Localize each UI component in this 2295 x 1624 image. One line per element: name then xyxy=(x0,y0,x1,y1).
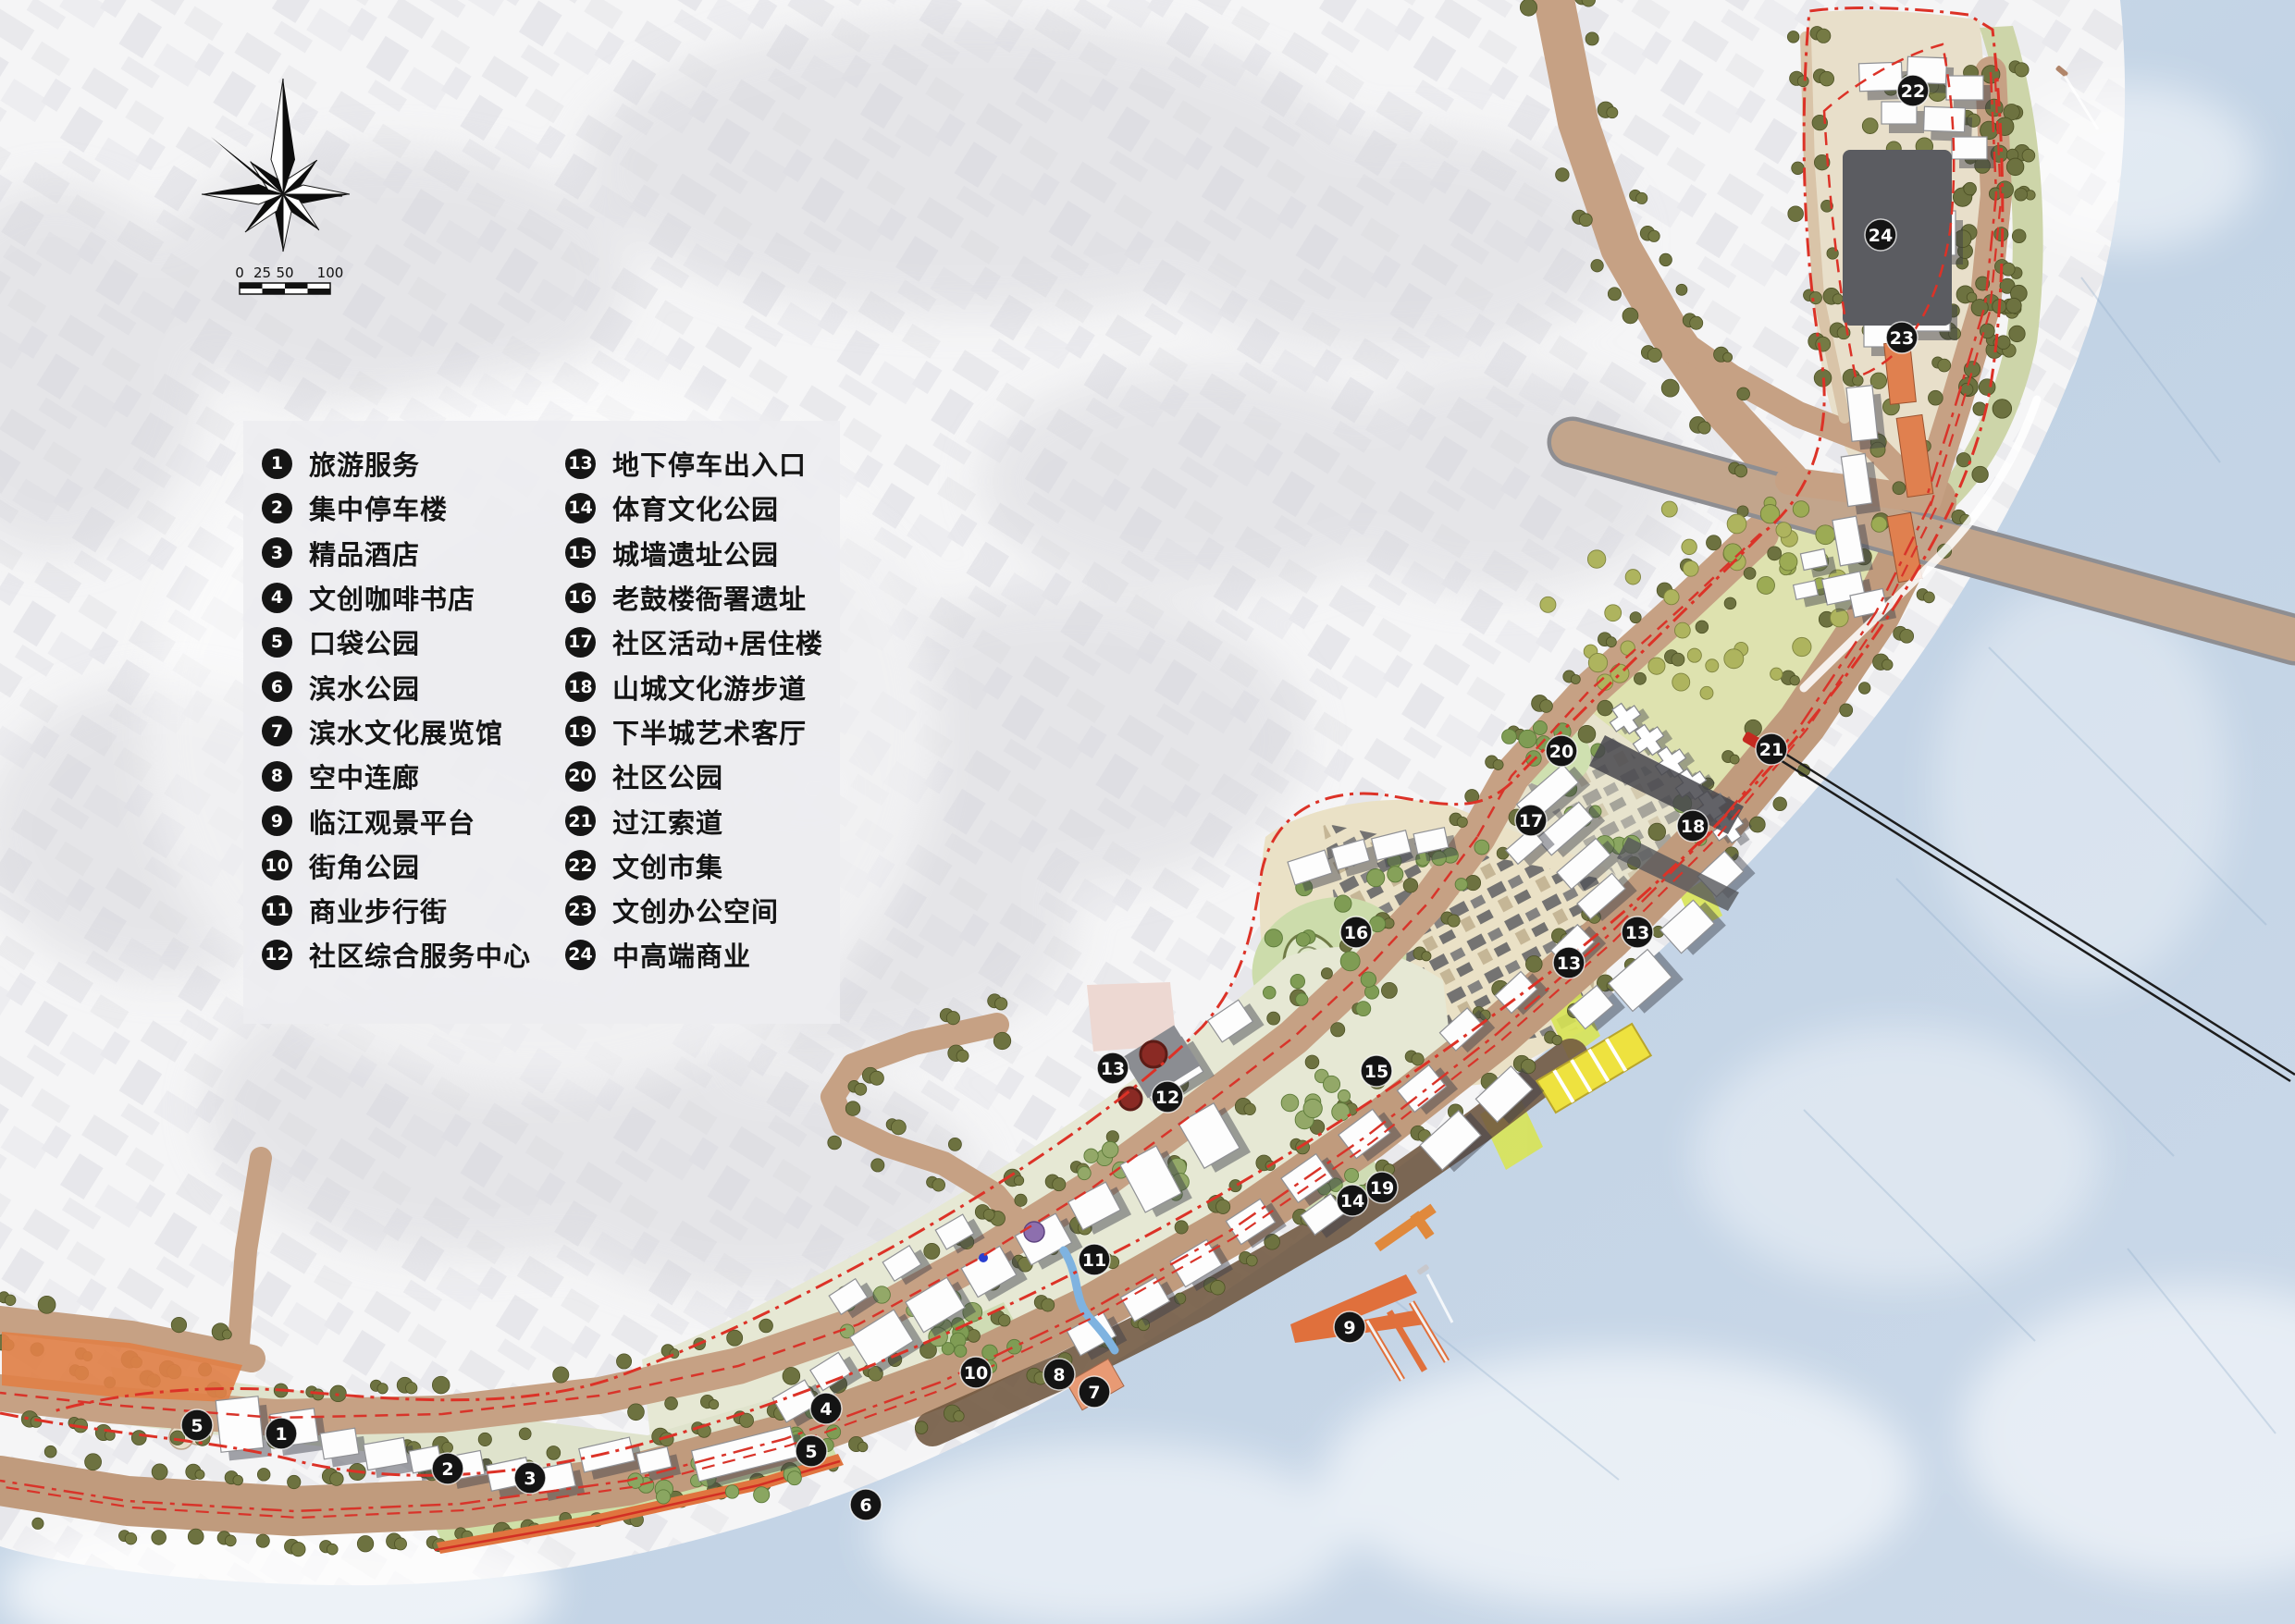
legend-item-label: 老鼓楼衙署遗址 xyxy=(612,578,807,617)
street-tree xyxy=(519,1428,531,1440)
map-marker: 4 xyxy=(810,1393,842,1424)
legend-item-label: 体育文化公园 xyxy=(612,488,779,527)
legend-item: 9临江观景平台 xyxy=(262,798,565,843)
legend-item-label: 文创咖啡书店 xyxy=(309,578,475,617)
street-tree xyxy=(1014,1175,1023,1185)
street-tree xyxy=(85,1454,102,1470)
park-tree xyxy=(1281,1094,1299,1112)
legend-item-label: 精品酒店 xyxy=(309,534,420,572)
street-tree xyxy=(1465,875,1480,890)
park-tree xyxy=(1540,597,1556,612)
map-marker: 1 xyxy=(265,1418,297,1449)
park-tree xyxy=(1780,553,1797,571)
park-tree xyxy=(1007,1339,1022,1354)
street-tree xyxy=(828,1136,842,1150)
scale-cell xyxy=(240,289,263,294)
street-tree xyxy=(1525,956,1542,973)
park-tree xyxy=(1960,383,1973,396)
street-tree xyxy=(1244,1103,1256,1115)
park-tree xyxy=(1388,867,1403,882)
park-tree xyxy=(1758,576,1775,594)
street-tree xyxy=(1737,388,1750,400)
street-tree xyxy=(1893,482,1906,495)
street-tree xyxy=(1853,375,1864,387)
street-tree xyxy=(1858,683,1870,695)
street-tree xyxy=(1648,823,1666,841)
park-tree xyxy=(1533,720,1547,734)
map-marker-number: 13 xyxy=(1101,1059,1125,1079)
scale-cell xyxy=(285,289,308,294)
map-marker: 13 xyxy=(1097,1052,1129,1084)
street-tree xyxy=(1768,547,1782,560)
legend-item-label: 地下停车出入口 xyxy=(612,444,807,483)
street-tree xyxy=(1305,1055,1319,1069)
park-tree xyxy=(2006,158,2024,176)
legend-item: 12社区综合服务中心 xyxy=(262,932,565,977)
legend-item-number: 5 xyxy=(262,627,292,658)
legend-item-number: 3 xyxy=(262,537,292,568)
map-marker-number: 23 xyxy=(1890,328,1914,349)
street-tree xyxy=(1571,674,1580,683)
building xyxy=(1946,76,1983,100)
street-tree xyxy=(1661,379,1679,397)
park-tree xyxy=(1290,974,1304,988)
street-tree xyxy=(871,1159,884,1172)
map-marker: 7 xyxy=(1079,1376,1110,1408)
street-tree xyxy=(1229,1180,1241,1192)
street-tree xyxy=(1788,206,1804,222)
legend-item: 17社区活动+居住楼 xyxy=(565,620,823,664)
street-tree xyxy=(616,1354,631,1369)
legend-item-number: 15 xyxy=(565,537,596,568)
street-tree xyxy=(38,1296,56,1313)
map-marker: 19 xyxy=(1366,1172,1398,1203)
street-tree xyxy=(932,1178,945,1191)
street-tree xyxy=(188,1529,204,1544)
street-tree xyxy=(1556,168,1570,182)
street-tree xyxy=(195,1470,204,1479)
street-tree xyxy=(1734,465,1746,477)
legend-item-label: 社区活动+居住楼 xyxy=(612,622,823,661)
map-marker: 24 xyxy=(1865,219,1896,251)
street-tree xyxy=(948,1138,961,1150)
park-tree xyxy=(1296,932,1310,946)
street-tree xyxy=(257,1469,270,1482)
legend-item-label: 滨水公园 xyxy=(309,668,420,707)
street-tree xyxy=(1215,1200,1229,1213)
map-marker-number: 11 xyxy=(1082,1250,1106,1271)
street-tree xyxy=(1586,32,1598,45)
scale-cell xyxy=(263,283,286,289)
legend-item-number: 1 xyxy=(262,449,292,479)
street-tree xyxy=(1175,1221,1188,1234)
map-marker: 18 xyxy=(1677,810,1709,842)
street-tree xyxy=(946,1012,959,1025)
park-tree xyxy=(1332,1103,1350,1121)
legend-item-number: 23 xyxy=(565,895,596,926)
legend-item: 22文创市集 xyxy=(565,843,823,888)
street-tree xyxy=(432,1376,450,1394)
street-tree xyxy=(1938,359,1951,372)
map-marker-number: 13 xyxy=(1625,923,1649,943)
map-marker-number: 8 xyxy=(1053,1365,1065,1385)
street-tree xyxy=(1211,1280,1226,1295)
street-tree xyxy=(1598,700,1613,716)
legend-panel: 1旅游服务2集中停车楼3精品酒店4文创咖啡书店5口袋公园6滨水公园7滨水文化展览… xyxy=(243,421,840,1024)
park-tree xyxy=(1706,659,1719,672)
legend-item-label: 山城文化游步道 xyxy=(612,668,807,707)
park-tree xyxy=(1605,605,1622,621)
street-tree xyxy=(983,1209,994,1220)
park-tree xyxy=(1323,1076,1339,1092)
map-marker-number: 14 xyxy=(1340,1191,1364,1212)
map-marker-number: 4 xyxy=(820,1399,832,1420)
map-marker-number: 9 xyxy=(1343,1318,1355,1338)
park-tree xyxy=(656,1490,670,1504)
park-tree xyxy=(1776,523,1792,538)
legend-item-number: 14 xyxy=(565,493,596,523)
map-marker-number: 15 xyxy=(1364,1062,1388,1082)
street-tree xyxy=(709,1399,718,1409)
park-tree xyxy=(1296,993,1308,1005)
street-tree xyxy=(1623,308,1638,324)
park-tree xyxy=(1727,514,1746,534)
legend-item-label: 临江观景平台 xyxy=(309,802,475,841)
legend-item: 16老鼓楼衙署遗址 xyxy=(565,575,823,620)
street-tree xyxy=(233,1475,243,1485)
legend-item-label: 商业步行街 xyxy=(309,891,448,929)
map-marker: 6 xyxy=(850,1489,882,1520)
street-tree xyxy=(394,1538,406,1550)
park-tree xyxy=(725,1485,738,1498)
street-tree xyxy=(1106,1131,1118,1143)
street-tree xyxy=(5,1295,16,1306)
park-tree xyxy=(1870,373,1886,388)
street-tree xyxy=(327,1544,338,1555)
map-marker-number: 5 xyxy=(191,1416,203,1436)
map-marker: 8 xyxy=(1043,1359,1075,1390)
street-tree xyxy=(2012,229,2026,243)
legend-item-label: 集中停车楼 xyxy=(309,488,448,527)
legend-item-number: 18 xyxy=(565,671,596,702)
legend-item: 15城墙遗址公园 xyxy=(565,531,823,575)
street-tree xyxy=(2015,188,2028,201)
legend-item-number: 22 xyxy=(565,850,596,880)
street-tree xyxy=(956,1050,969,1062)
map-marker-number: 22 xyxy=(1901,81,1925,102)
park-tree xyxy=(1871,516,1887,532)
legend-item-number: 16 xyxy=(565,583,596,613)
street-tree xyxy=(1882,659,1894,671)
scale-label-25: 25 xyxy=(253,265,271,281)
map-marker: 9 xyxy=(1334,1311,1365,1343)
park-tree xyxy=(1793,637,1811,656)
building-footprint xyxy=(216,1396,272,1461)
street-tree xyxy=(125,1532,137,1544)
street-tree xyxy=(1321,967,1332,978)
park-tree xyxy=(1964,182,1977,195)
street-tree xyxy=(1820,71,1834,86)
street-tree xyxy=(478,1433,491,1446)
street-tree xyxy=(870,1071,883,1085)
map-marker-number: 13 xyxy=(1557,953,1581,974)
street-tree xyxy=(1331,1023,1345,1037)
legend-item: 1旅游服务 xyxy=(262,441,565,486)
legend-item: 13地下停车出入口 xyxy=(565,441,823,486)
legend-item: 11商业步行街 xyxy=(262,888,565,932)
map-marker-number: 19 xyxy=(1370,1178,1394,1199)
map-marker-number: 10 xyxy=(964,1363,988,1384)
park-tree xyxy=(1661,501,1677,517)
park-tree xyxy=(2006,298,2021,313)
park-tree xyxy=(1084,1149,1098,1163)
street-tree xyxy=(152,1531,167,1545)
street-tree xyxy=(1809,292,1821,304)
street-tree xyxy=(1552,1035,1561,1044)
scale-cell xyxy=(285,283,308,289)
street-tree xyxy=(1403,879,1418,893)
park-tree xyxy=(1587,550,1605,568)
legend-item-label: 文创办公空间 xyxy=(612,891,779,929)
street-tree xyxy=(993,1032,1011,1050)
park-tree xyxy=(1303,1099,1322,1117)
legend-item: 19下半城艺术客厅 xyxy=(565,709,823,754)
legend-item-number: 8 xyxy=(262,761,292,792)
street-tree xyxy=(2015,63,2029,77)
legend-item-number: 9 xyxy=(262,806,292,836)
street-tree xyxy=(1634,672,1646,684)
building-footprint xyxy=(1846,385,1886,450)
map-marker: 13 xyxy=(1622,917,1653,948)
street-tree xyxy=(739,1413,753,1427)
map-marker: 3 xyxy=(514,1462,546,1494)
park-tree xyxy=(1078,1166,1091,1179)
street-tree xyxy=(1267,1012,1280,1025)
legend-item-number: 19 xyxy=(565,716,596,746)
street-tree xyxy=(1607,107,1618,118)
street-tree xyxy=(1672,653,1684,666)
street-tree xyxy=(2002,263,2015,276)
park-tree xyxy=(1771,668,1783,680)
street-tree xyxy=(1676,284,1687,295)
street-tree xyxy=(1923,592,1934,603)
scale-cell xyxy=(240,283,263,289)
street-tree xyxy=(1749,817,1765,832)
street-tree xyxy=(727,1330,743,1346)
street-tree xyxy=(1457,817,1467,827)
street-tree xyxy=(1792,162,1805,175)
legend-item-number: 11 xyxy=(262,895,292,926)
legend-item-number: 4 xyxy=(262,583,292,613)
map-marker-number: 2 xyxy=(441,1459,453,1480)
street-tree xyxy=(1630,612,1641,623)
site-plan-canvas: 0 25 50 100 1234556789101112131313141516… xyxy=(0,0,2295,1624)
map-marker: 20 xyxy=(1546,735,1577,767)
street-tree xyxy=(845,1101,860,1116)
park-tree xyxy=(754,1487,770,1503)
street-tree xyxy=(924,1243,940,1259)
map-marker: 11 xyxy=(1079,1244,1110,1275)
street-tree xyxy=(1579,214,1592,227)
building xyxy=(216,1396,264,1453)
street-tree xyxy=(2022,149,2035,162)
park-tree xyxy=(1862,118,1878,134)
street-tree xyxy=(1979,379,1995,396)
street-tree xyxy=(1422,952,1431,961)
street-tree xyxy=(547,1446,561,1460)
street-tree xyxy=(171,1317,186,1332)
street-tree xyxy=(377,1384,388,1394)
street-tree xyxy=(1448,915,1460,927)
street-tree xyxy=(291,1543,305,1556)
street-tree xyxy=(628,1404,645,1421)
street-tree xyxy=(1591,260,1603,272)
street-tree xyxy=(1520,0,1536,16)
street-tree xyxy=(1730,755,1739,764)
park-tree xyxy=(787,1471,801,1485)
legend-item-number: 17 xyxy=(565,627,596,658)
legend-item: 20社区公园 xyxy=(565,754,823,798)
scale-cell xyxy=(308,289,331,294)
building xyxy=(1858,62,1902,92)
street-tree xyxy=(225,1535,236,1546)
legend-item-label: 城墙遗址公园 xyxy=(612,534,779,572)
park-tree xyxy=(1502,730,1517,744)
legend-item: 3精品酒店 xyxy=(262,531,565,575)
map-marker-number: 18 xyxy=(1681,817,1705,837)
park-tree xyxy=(1972,466,1988,482)
street-tree xyxy=(1956,453,1970,467)
street-tree xyxy=(1928,390,1943,405)
scale-label-0: 0 xyxy=(235,265,244,281)
street-tree xyxy=(1053,1177,1066,1190)
street-tree xyxy=(1647,348,1661,362)
legend-item-number: 13 xyxy=(565,449,596,479)
park-tree xyxy=(1455,879,1467,891)
park-tree xyxy=(1345,1168,1359,1182)
legend-item-label: 空中连廊 xyxy=(309,757,420,795)
scale-label-100: 100 xyxy=(317,265,344,281)
map-marker: 23 xyxy=(1886,322,1918,353)
legend-item: 7滨水文化展览馆 xyxy=(262,709,565,754)
street-tree xyxy=(1493,759,1503,769)
legend-item: 21过江索道 xyxy=(565,798,823,843)
park-tree xyxy=(2009,326,2025,341)
street-tree xyxy=(1832,294,1843,304)
park-tree xyxy=(1683,561,1698,577)
street-tree xyxy=(405,1383,416,1394)
street-tree xyxy=(1042,1298,1055,1311)
street-tree xyxy=(665,1397,678,1410)
legend-item: 23文创办公空间 xyxy=(565,888,823,932)
street-tree xyxy=(152,1464,167,1480)
scale-label-50: 50 xyxy=(276,265,293,281)
map-marker-number: 12 xyxy=(1155,1088,1179,1108)
map-marker: 5 xyxy=(181,1409,213,1441)
park-tree xyxy=(1340,952,1360,971)
street-tree xyxy=(256,1534,269,1547)
legend-item-number: 21 xyxy=(565,806,596,836)
map-marker-number: 17 xyxy=(1519,811,1543,831)
map-marker-number: 24 xyxy=(1869,226,1893,246)
park-tree xyxy=(1474,840,1489,855)
legend-item: 24中高端商业 xyxy=(565,932,823,977)
map-marker: 13 xyxy=(1553,947,1585,978)
map-marker: 16 xyxy=(1340,917,1372,948)
legend-item: 5口袋公园 xyxy=(262,620,565,664)
map-marker: 5 xyxy=(796,1435,827,1467)
legend-item-number: 7 xyxy=(262,716,292,746)
park-tree xyxy=(1265,929,1282,947)
street-tree xyxy=(1773,797,1787,811)
street-tree xyxy=(858,1442,868,1452)
street-tree xyxy=(553,1367,569,1383)
park-tree xyxy=(1335,895,1351,912)
park-tree xyxy=(1356,1002,1371,1016)
park-tree xyxy=(955,1345,967,1357)
street-tree xyxy=(32,1518,43,1529)
park-tree xyxy=(1674,622,1690,638)
street-tree xyxy=(1817,29,1831,43)
park-tree xyxy=(1996,336,2010,350)
park-tree xyxy=(1672,673,1690,691)
building xyxy=(1924,106,1966,132)
street-tree xyxy=(855,1083,867,1095)
street-tree xyxy=(1790,675,1799,684)
street-tree xyxy=(891,1120,906,1135)
park-tree xyxy=(982,1345,998,1360)
scale-cell xyxy=(263,289,286,294)
legend-item-number: 2 xyxy=(262,493,292,523)
street-tree xyxy=(1648,230,1660,241)
building xyxy=(1846,386,1878,442)
legend-item-label: 社区综合服务中心 xyxy=(309,935,531,974)
street-tree xyxy=(357,1536,373,1552)
street-tree xyxy=(915,1421,928,1434)
park-tree xyxy=(1625,570,1640,584)
legend-item: 14体育文化公园 xyxy=(565,486,823,530)
legend-item-number: 24 xyxy=(565,940,596,970)
legend-item-number: 10 xyxy=(262,850,292,880)
map-marker-number: 1 xyxy=(275,1424,287,1445)
map-marker-number: 16 xyxy=(1344,923,1368,943)
legend-item: 2集中停车楼 xyxy=(262,486,565,530)
park-tree xyxy=(1687,648,1701,662)
park-tree xyxy=(1724,649,1744,669)
park-tree xyxy=(1816,525,1835,545)
map-marker-number: 3 xyxy=(524,1469,536,1489)
legend-column-1: 1旅游服务2集中停车楼3精品酒店4文创咖啡书店5口袋公园6滨水公园7滨水文化展览… xyxy=(262,441,565,1024)
legend-item-label: 滨水文化展览馆 xyxy=(309,712,503,751)
legend-item-number: 20 xyxy=(565,761,596,792)
map-marker: 21 xyxy=(1756,733,1787,765)
map-marker: 14 xyxy=(1337,1185,1368,1216)
legend-item-number: 6 xyxy=(262,671,292,702)
park-tree xyxy=(1361,972,1376,987)
street-tree xyxy=(44,1446,56,1458)
park-tree xyxy=(1102,1141,1118,1158)
street-tree xyxy=(170,1431,185,1446)
map-marker: 17 xyxy=(1515,805,1547,836)
street-tree xyxy=(1606,637,1616,647)
park-tree xyxy=(1682,539,1697,554)
map-marker-number: 20 xyxy=(1549,742,1573,762)
legend-item-label: 口袋公园 xyxy=(309,622,420,661)
street-tree xyxy=(1797,76,1808,87)
street-tree xyxy=(1015,1194,1027,1206)
street-tree xyxy=(1636,192,1647,203)
map-marker: 2 xyxy=(432,1453,463,1484)
